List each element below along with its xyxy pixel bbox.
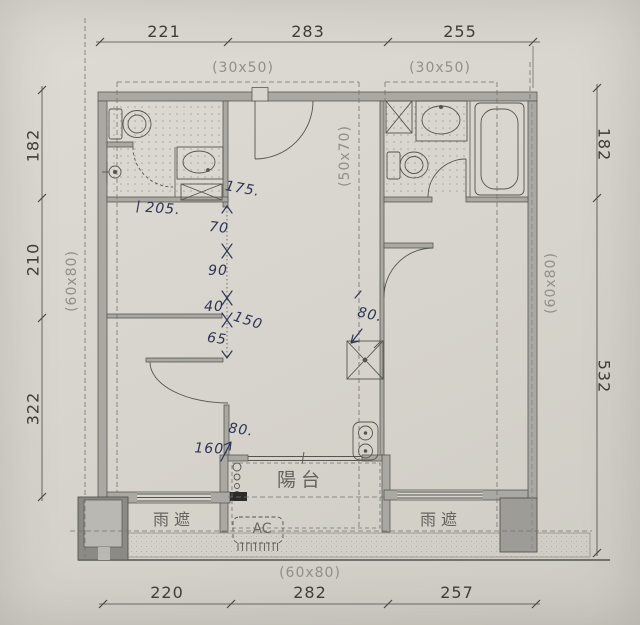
window-spec-interior: (50x70): [337, 121, 353, 191]
window-spec-bottom: (60x80): [270, 565, 350, 581]
dim-top-2: 283: [273, 22, 343, 41]
dim-left-3: 322: [24, 375, 43, 443]
dim-top-3: 255: [425, 22, 495, 41]
stove: [353, 422, 378, 460]
rain-cover-left-label: 雨遮: [134, 506, 214, 530]
dim-bottom-2: 282: [275, 583, 345, 602]
dim-bottom-1: 220: [132, 583, 202, 602]
window-spec-top-right: (30x50): [400, 60, 480, 76]
window-spec-top-left: (30x50): [203, 60, 283, 76]
dim-top-1: 221: [129, 22, 199, 41]
rain-cover-right-label: 雨遮: [401, 506, 481, 530]
dim-left-1: 182: [24, 112, 43, 180]
kitchen-sink: [347, 341, 383, 379]
utility-meters: [230, 463, 247, 501]
handwritten-dim-65: 65: [205, 330, 229, 349]
dim-bottom-3: 257: [422, 583, 492, 602]
floor-plan-page: 221 283 255 (30x50) (30x50) 220 282 257 …: [0, 0, 640, 625]
handwritten-ink-marks: [137, 201, 362, 461]
dim-right-1: 182: [595, 111, 614, 179]
window-spec-right: (60x80): [543, 248, 559, 318]
dim-left-2: 210: [24, 226, 43, 294]
window-spec-left: (60x80): [64, 246, 80, 316]
bathtub: [475, 103, 524, 195]
handwritten-dim-160: 160.: [193, 440, 232, 457]
handwritten-dim-205: 205.: [144, 200, 181, 218]
handwritten-dim-40: 40: [203, 299, 225, 315]
dim-right-2: 532: [595, 343, 614, 411]
ac-label: AC: [242, 521, 282, 537]
balcony-label: 陽台: [261, 465, 341, 492]
handwritten-dim-70: 70: [207, 219, 231, 237]
handwritten-dim-90: 90: [207, 263, 229, 279]
